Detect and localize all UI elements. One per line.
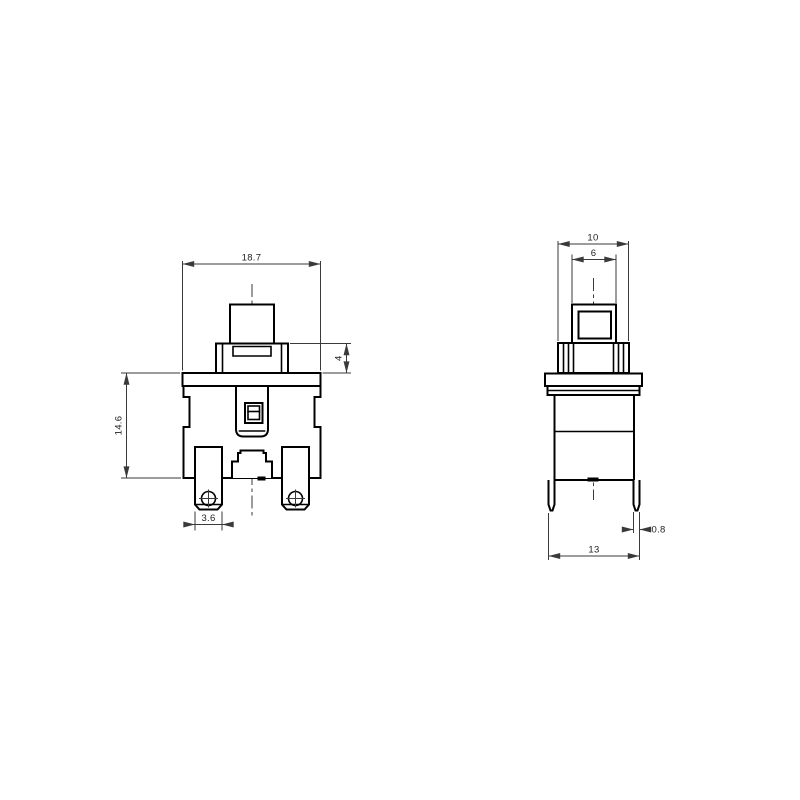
dim-button-width-value: 6 bbox=[591, 248, 597, 259]
side-bottom-mark bbox=[588, 478, 599, 482]
dim-pin-span-value: 13 bbox=[588, 545, 599, 556]
side-view: 10 6 0.8 13 bbox=[545, 233, 666, 561]
dim-terminal-width: 3.6 bbox=[185, 512, 232, 531]
technical-drawing-svg: 18.7 4 14.6 3.6 bbox=[0, 0, 800, 800]
side-flange bbox=[545, 374, 642, 387]
dim-pin-span: 13 bbox=[549, 513, 640, 560]
dim-terminal-width-value: 3.6 bbox=[201, 513, 215, 524]
front-flange bbox=[183, 373, 321, 386]
front-collar bbox=[216, 344, 288, 374]
dim-collar-width-value: 10 bbox=[587, 233, 598, 244]
side-pin-right bbox=[634, 480, 640, 511]
dim-pin-thickness-value: 0.8 bbox=[652, 525, 666, 536]
side-pin-left bbox=[549, 480, 555, 511]
front-center-boss bbox=[232, 451, 272, 479]
front-view: 18.7 4 14.6 3.6 bbox=[114, 253, 352, 531]
dim-body-height-value: 14.6 bbox=[114, 416, 125, 436]
front-terminal-right bbox=[282, 447, 309, 510]
dim-overall-width-value: 18.7 bbox=[242, 253, 262, 264]
dim-pin-thickness: 0.8 bbox=[623, 512, 666, 536]
drawing-canvas: 18.7 4 14.6 3.6 bbox=[0, 0, 800, 800]
side-body bbox=[555, 395, 635, 480]
front-button bbox=[230, 305, 274, 344]
front-bottom-mark bbox=[258, 477, 266, 481]
dim-collar-height-value: 4 bbox=[334, 355, 345, 361]
dim-body-height: 14.6 bbox=[114, 373, 182, 478]
front-terminal-left bbox=[195, 447, 222, 510]
